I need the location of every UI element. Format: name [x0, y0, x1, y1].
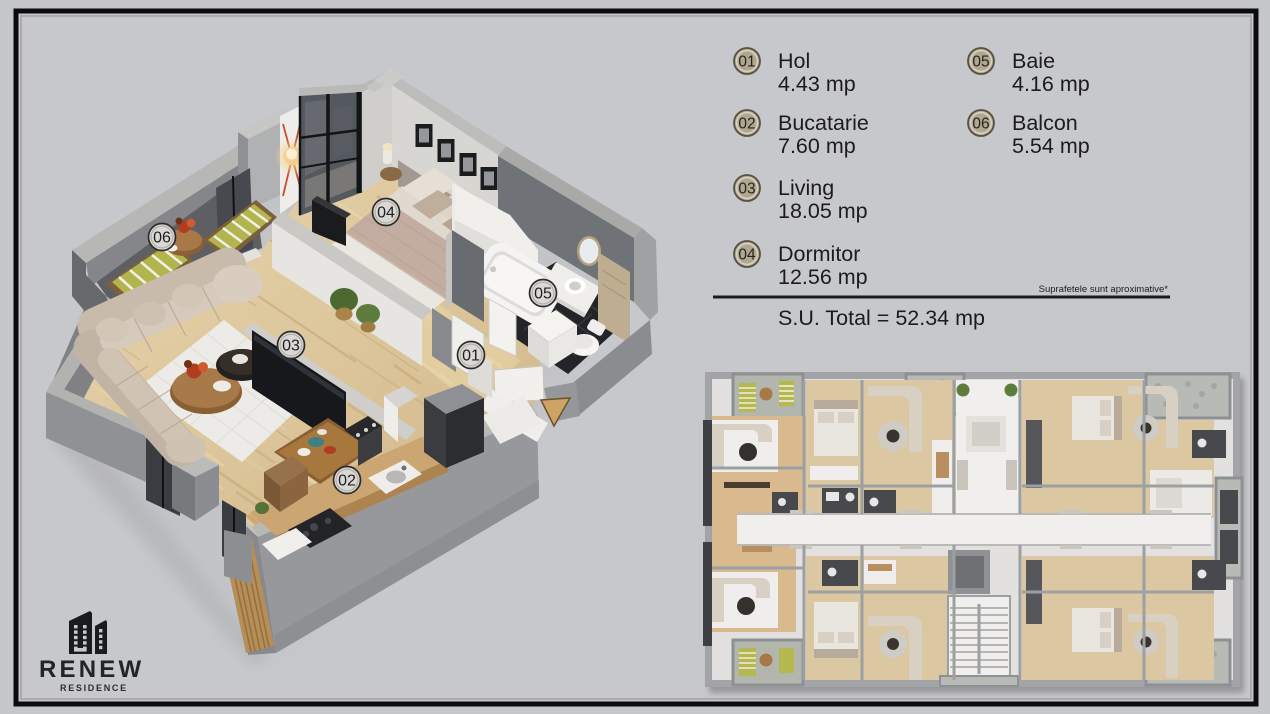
svg-text:Dormitor: Dormitor: [778, 242, 860, 266]
svg-text:03: 03: [282, 338, 300, 355]
svg-text:Balcon: Balcon: [1012, 111, 1078, 135]
svg-text:Suprafetele sunt aproximative*: Suprafetele sunt aproximative*: [1039, 284, 1169, 295]
svg-text:18.05 mp: 18.05 mp: [778, 199, 868, 223]
svg-text:12.56 mp: 12.56 mp: [778, 265, 868, 289]
svg-text:RESIDENCE: RESIDENCE: [60, 683, 128, 693]
svg-text:S.U. Total = 52.34 mp: S.U. Total = 52.34 mp: [778, 306, 985, 330]
svg-text:7.60 mp: 7.60 mp: [778, 134, 856, 158]
svg-text:03: 03: [738, 180, 755, 197]
svg-text:4.16 mp: 4.16 mp: [1012, 72, 1090, 96]
svg-text:04: 04: [738, 246, 756, 263]
svg-text:02: 02: [338, 473, 356, 490]
svg-text:05: 05: [534, 286, 552, 303]
svg-text:Bucatarie: Bucatarie: [778, 111, 869, 135]
svg-text:4.43 mp: 4.43 mp: [778, 72, 856, 96]
svg-text:RENEW: RENEW: [39, 656, 144, 683]
svg-text:02: 02: [738, 115, 755, 132]
svg-text:01: 01: [462, 348, 480, 365]
svg-text:Hol: Hol: [778, 49, 810, 73]
svg-text:01: 01: [738, 53, 755, 70]
svg-text:06: 06: [972, 115, 989, 132]
svg-text:06: 06: [153, 230, 171, 247]
svg-text:5.54 mp: 5.54 mp: [1012, 134, 1090, 158]
svg-text:Living: Living: [778, 176, 834, 200]
svg-text:Baie: Baie: [1012, 49, 1055, 73]
svg-text:05: 05: [972, 53, 989, 70]
svg-text:04: 04: [377, 205, 395, 222]
